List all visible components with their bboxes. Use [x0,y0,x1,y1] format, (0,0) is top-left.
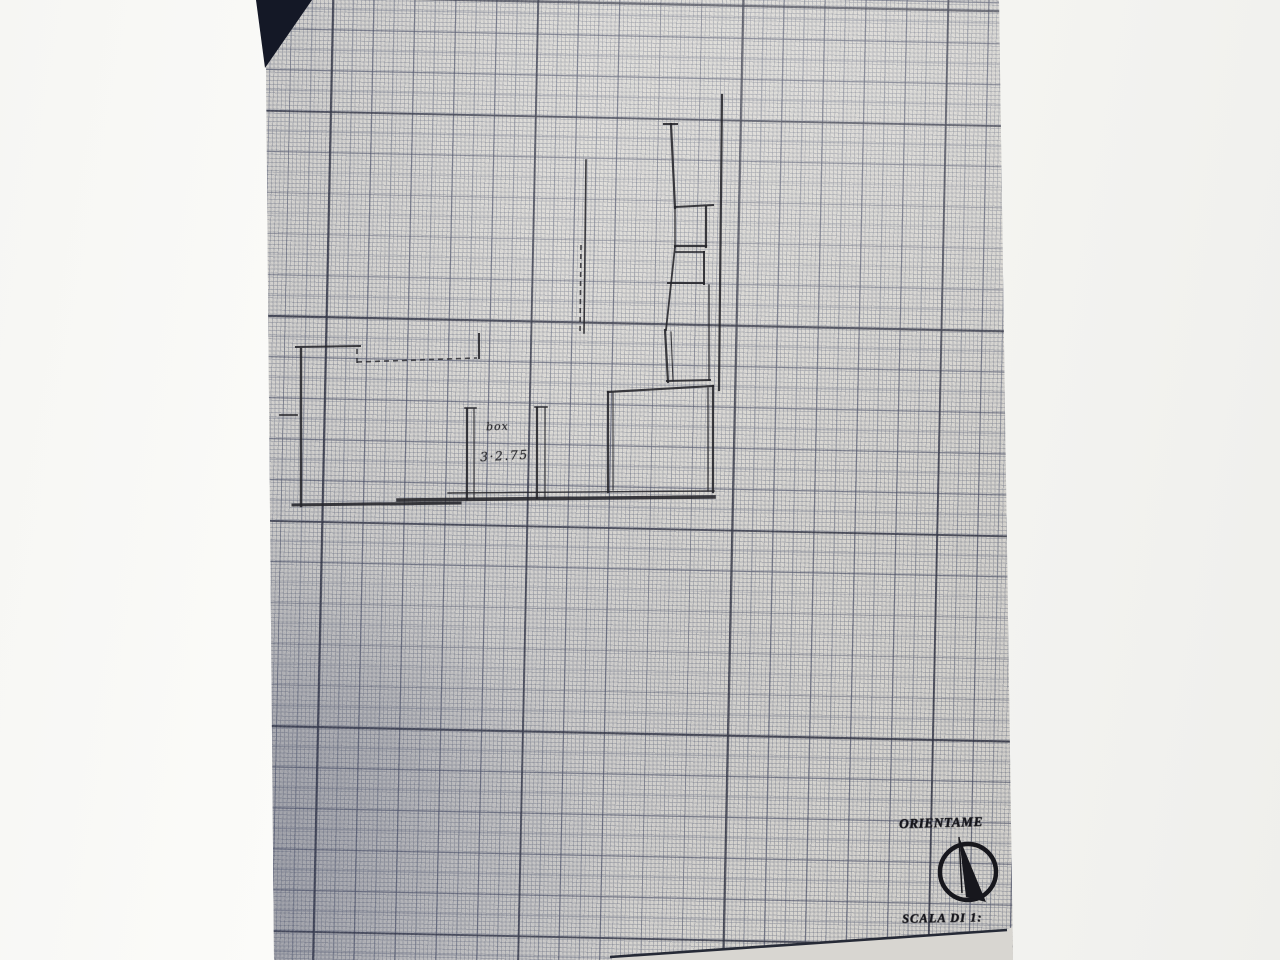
plan-wall-line [448,491,714,493]
scale-label: SCALA DI 1: [902,910,983,926]
plan-wall-line [675,205,713,207]
plan-wall-line [671,332,673,381]
paper-margin-band [610,926,1018,960]
plan-wall-line [296,346,360,347]
plan-wall-line [666,247,675,330]
plan-wall-line [398,497,714,500]
plan-wall-line [608,386,713,392]
plan-wall-line [665,330,668,382]
paper-sheet: box 3·2.75 ORIENTAME SCALA DI 1: [0,0,1280,960]
plan-walls [280,95,722,506]
orientation-label: ORIENTAME [899,814,983,832]
plan-drawing [0,0,1280,960]
plan-wall-line [719,95,722,390]
plan-dashed-line [357,358,477,362]
plan-wall-line [584,160,586,333]
plan-wall-line [667,380,710,381]
photographed-floor-plan: box 3·2.75 ORIENTAME SCALA DI 1: [0,0,1280,960]
plan-wall-line [293,503,460,505]
plan-dashed-line [580,245,581,334]
plan-dashed-lines [357,245,581,363]
plan-wall-line [671,124,675,208]
north-arrow-compass-icon [940,837,996,902]
handwritten-room-label-line1: box [486,420,509,434]
handwritten-room-label-line2: 3·2.75 [480,447,529,465]
